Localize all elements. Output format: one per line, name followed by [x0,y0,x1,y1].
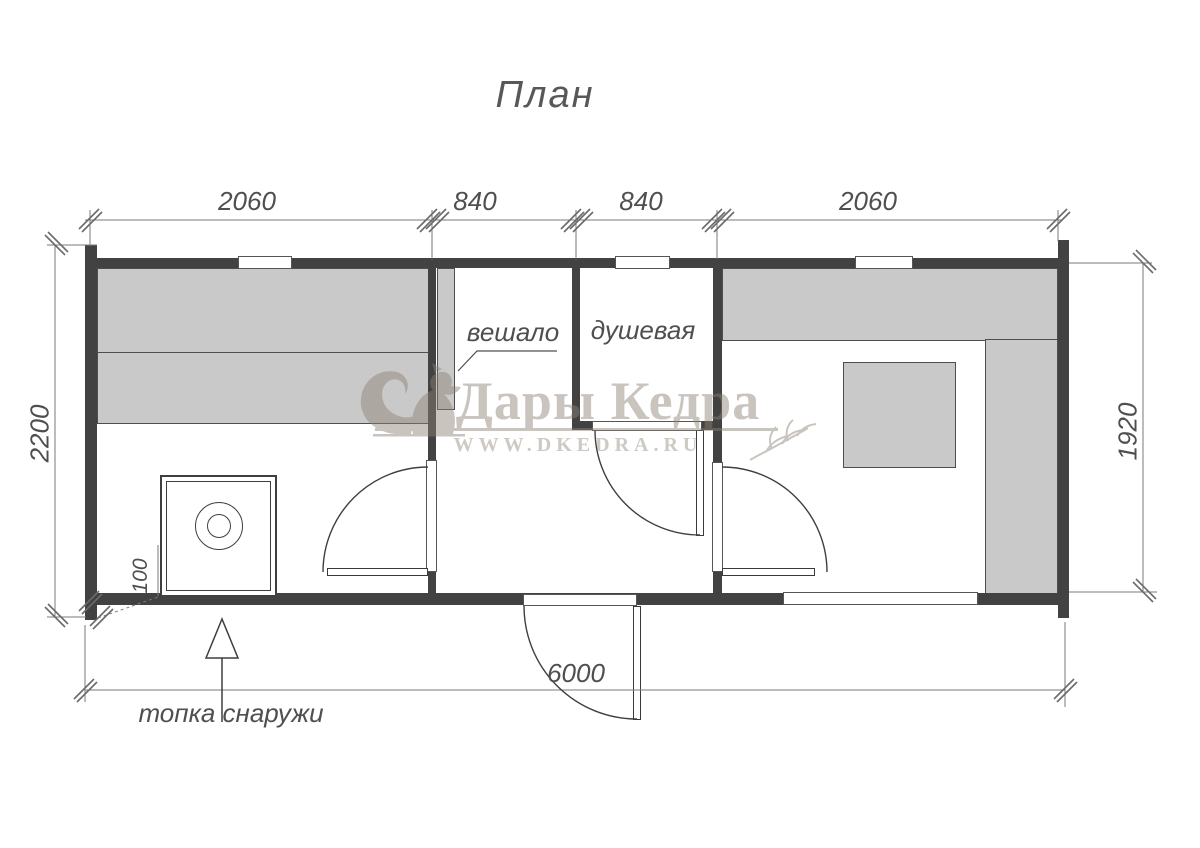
dim-top-4: 2060 [818,186,918,217]
shower-door-arc [595,430,700,535]
dim-right: 1920 [1113,382,1144,482]
restroom-door-arc [722,467,827,572]
dim-top-3: 840 [591,186,691,217]
dim-top-1: 2060 [197,186,297,217]
dim-left: 2200 [25,384,56,484]
furnace-note: топка снаружи [131,698,331,729]
hanger-leader-line [458,351,557,371]
shower-label: душевая [583,315,703,346]
hanger-label: вешало [453,317,573,348]
dim-bottom: 6000 [526,658,626,689]
floor-plan: План [0,0,1200,848]
dim-stove-offset: 100 [129,536,153,616]
sauna-door-arc [323,467,428,572]
dim-top-2: 840 [425,186,525,217]
